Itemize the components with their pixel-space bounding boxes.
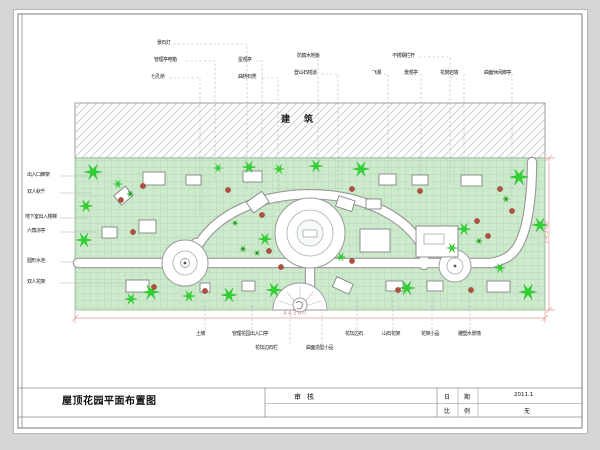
callout-top-3: 七孔桥 xyxy=(151,74,165,80)
date-value: 2011.1 xyxy=(514,392,533,398)
callout-left-5: 圆形水池 xyxy=(27,258,79,264)
callout-bottom-5: 花架小品 xyxy=(421,331,439,337)
scale-value: 无 xyxy=(524,406,530,415)
building-label: 建筑 xyxy=(281,112,327,125)
callout-left-3: 地下室出入楼梯 xyxy=(25,214,77,220)
sheet-title: 屋顶花园平面布置图 xyxy=(62,392,157,407)
callout-top-11: 花岗岩墙 xyxy=(440,70,458,76)
dimension-right-value: 14300 xyxy=(543,220,550,244)
callout-bottom-2: 管理花园出入口亭 xyxy=(232,331,268,337)
callout-top-4: 星观亭 xyxy=(238,57,252,63)
review-label: 审核 xyxy=(294,392,320,402)
callout-top-1: 景石灯 xyxy=(157,40,171,46)
plan-graphics xyxy=(0,0,600,450)
callout-top-5: 曲桥石凳 xyxy=(238,74,256,80)
drawing-viewer: 建筑 景石灯 管理亭电箱 七孔桥 星观亭 曲桥石凳 防腐木地板 登山石栈道 不锈… xyxy=(0,0,600,450)
callout-bottom-4: 山石花架 xyxy=(382,331,400,337)
callout-left-4: 六角凉亭 xyxy=(27,228,79,234)
callout-top-2: 管理亭电箱 xyxy=(154,57,177,63)
callout-top-12: 曲面休闲廊亭 xyxy=(484,70,511,76)
callout-top-9: 飞瀑 xyxy=(372,70,381,76)
date-label-2: 期 xyxy=(464,392,470,401)
callout-bottom-6: 雕塑水景墙 xyxy=(458,331,481,337)
dimension-bottom-value: 44300 xyxy=(283,310,307,317)
callout-left-6: 双人花架 xyxy=(27,279,79,285)
callout-bottom2-1: 花坛边石栏 xyxy=(255,345,278,351)
callout-bottom-1: 土坡 xyxy=(196,331,205,337)
date-label-1: 日 xyxy=(444,392,450,401)
scale-label-1: 比 xyxy=(444,406,450,415)
scale-label-2: 例 xyxy=(464,406,470,415)
callout-top-10: 景观亭 xyxy=(404,70,418,76)
callout-left-2: 双人秋千 xyxy=(27,189,79,195)
callout-bottom-3: 花坛边石 xyxy=(345,331,363,337)
left-plaza xyxy=(162,240,208,286)
callout-bottom2-2: 曲面造型小品 xyxy=(306,345,333,351)
callout-top-7: 登山石栈道 xyxy=(294,70,317,76)
callout-top-8: 不锈钢栏杆 xyxy=(392,53,415,59)
callout-top-6: 防腐木地板 xyxy=(297,53,320,59)
central-plaza xyxy=(275,198,345,268)
callout-left-1: 出入口廊架 xyxy=(27,172,79,178)
